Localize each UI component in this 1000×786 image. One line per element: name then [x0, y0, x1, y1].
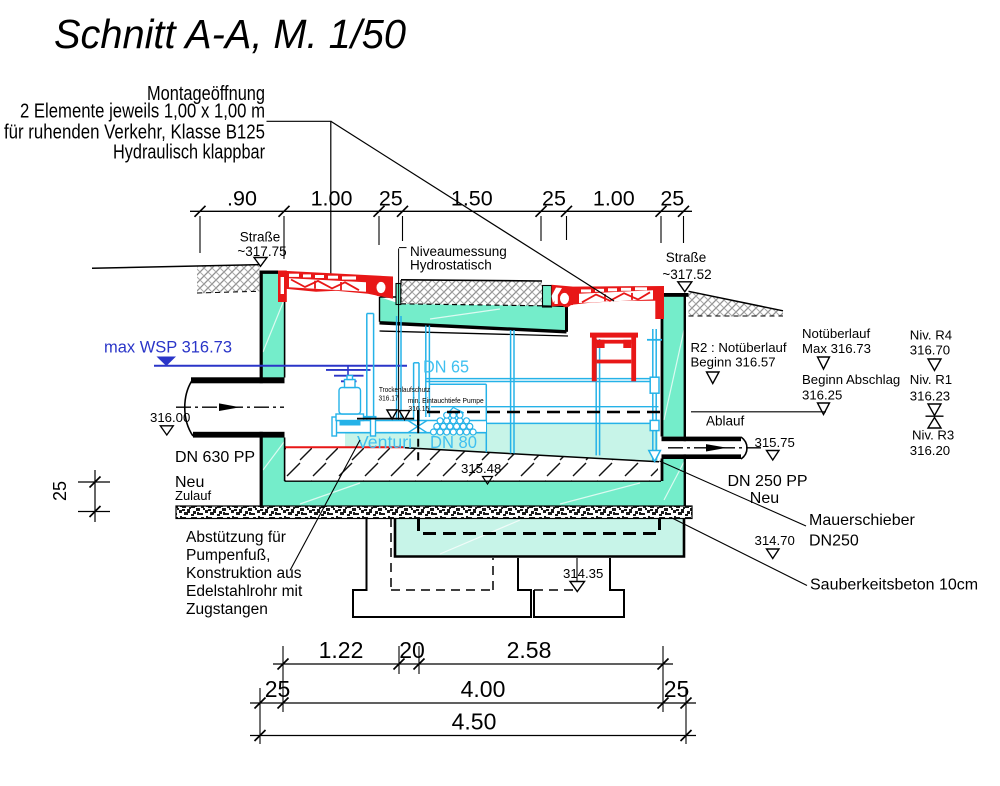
svg-text:DN250: DN250: [809, 533, 859, 550]
svg-text:25: 25: [265, 676, 291, 702]
svg-text:25: 25: [542, 187, 566, 211]
svg-text:1.50: 1.50: [451, 187, 493, 211]
svg-text:Niv. R4: Niv. R4: [910, 328, 952, 343]
svg-text:1.00: 1.00: [593, 187, 635, 211]
svg-text:Neu: Neu: [750, 490, 779, 507]
svg-text:314.70: 314.70: [755, 533, 795, 548]
svg-text:1.22: 1.22: [319, 637, 364, 663]
svg-text:Beginn Abschlag: Beginn Abschlag: [802, 372, 900, 387]
svg-text:316.15: 316.15: [408, 404, 429, 413]
svg-text:Ablauf: Ablauf: [706, 414, 745, 429]
svg-text:316.17: 316.17: [379, 394, 399, 403]
svg-text:4.00: 4.00: [461, 676, 506, 702]
svg-text:Straße: Straße: [240, 230, 281, 245]
svg-text:Zulauf: Zulauf: [175, 488, 212, 503]
svg-text:4.50: 4.50: [452, 709, 497, 735]
svg-text:316.00: 316.00: [150, 410, 190, 425]
svg-text:Schnitt A-A, M. 1/50: Schnitt A-A, M. 1/50: [54, 11, 406, 57]
svg-text:1.00: 1.00: [311, 187, 353, 211]
svg-text:315.48: 315.48: [461, 461, 501, 476]
svg-text:Konstruktion aus: Konstruktion aus: [186, 565, 302, 582]
svg-text:Hydrostatisch: Hydrostatisch: [410, 258, 492, 273]
svg-text:316.20: 316.20: [910, 443, 950, 458]
svg-text:315.75: 315.75: [755, 435, 795, 450]
svg-text:2 Elemente jeweils 1,00 x 1,00: 2 Elemente jeweils 1,00 x 1,00 m: [20, 101, 265, 123]
svg-text:25: 25: [50, 481, 70, 501]
svg-text:316.23: 316.23: [910, 389, 950, 404]
svg-text:Straße: Straße: [666, 250, 707, 265]
svg-text:Pumpenfuß,: Pumpenfuß,: [186, 547, 270, 564]
svg-text:DN 630 PP: DN 630 PP: [175, 449, 255, 466]
svg-text:316.70: 316.70: [910, 343, 950, 358]
svg-text:Zugstangen: Zugstangen: [186, 601, 268, 618]
svg-text:max WSP 316.73: max WSP 316.73: [104, 338, 232, 357]
svg-text:25: 25: [379, 187, 403, 211]
svg-text:.90: .90: [227, 187, 257, 211]
svg-text:25: 25: [664, 676, 690, 702]
svg-text:DN 80: DN 80: [430, 432, 477, 452]
svg-text:~317.75: ~317.75: [237, 244, 286, 259]
svg-text:Sauberkeitsbeton 10cm: Sauberkeitsbeton 10cm: [810, 577, 978, 594]
svg-text:R2 : Notüberlauf: R2 : Notüberlauf: [691, 340, 787, 355]
svg-text:Max 316.73: Max 316.73: [802, 341, 871, 356]
svg-text:für ruhenden Verkehr, Klasse B: für ruhenden Verkehr, Klasse B125: [4, 122, 265, 144]
svg-text:316.25: 316.25: [802, 388, 842, 403]
svg-text:20: 20: [399, 637, 425, 663]
svg-text:Hydraulisch klappbar: Hydraulisch klappbar: [113, 142, 265, 164]
svg-text:Edelstahlrohr mit: Edelstahlrohr mit: [186, 583, 303, 600]
svg-text:25: 25: [660, 187, 684, 211]
svg-text:Beginn 316.57: Beginn 316.57: [691, 355, 776, 370]
svg-text:DN 65: DN 65: [423, 357, 469, 377]
svg-text:~317.52: ~317.52: [662, 267, 711, 282]
svg-text:314.35: 314.35: [563, 566, 603, 581]
svg-text:DN 250 PP: DN 250 PP: [728, 473, 808, 490]
svg-text:Abstützung für: Abstützung für: [186, 529, 286, 546]
svg-text:Mauerschieber: Mauerschieber: [809, 512, 916, 529]
svg-text:Notüberlauf: Notüberlauf: [802, 326, 871, 341]
svg-text:Venturi: Venturi: [357, 432, 412, 452]
svg-text:Niv. R1: Niv. R1: [910, 372, 952, 387]
svg-text:2.58: 2.58: [507, 637, 552, 663]
svg-text:Niv. R3: Niv. R3: [912, 428, 954, 443]
